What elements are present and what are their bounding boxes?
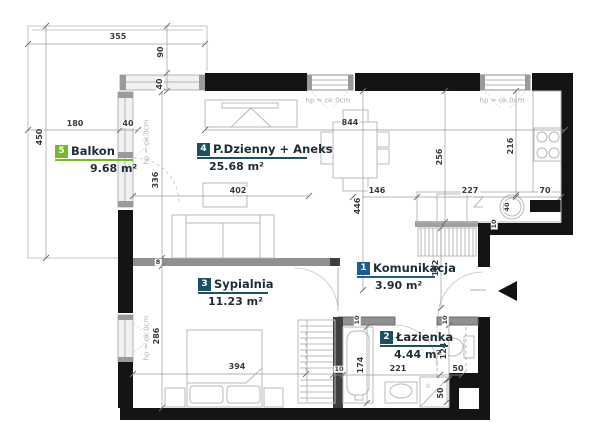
wardrobe: [298, 320, 335, 403]
dimension-label: 402: [229, 187, 248, 195]
dimension-label: 50: [451, 365, 464, 373]
sofa: [172, 215, 274, 258]
room-name: Łazienka: [396, 330, 453, 344]
room-number-badge: 3: [198, 278, 211, 291]
dimension-label: 355: [109, 33, 128, 41]
washbasin: [385, 382, 417, 403]
dimension-label: 10: [354, 314, 361, 325]
room-area: 11.23 m²: [208, 295, 268, 308]
dimension-label: 10: [333, 366, 344, 373]
dimension-label: 10: [491, 218, 498, 229]
floor-plan-drawing: d: [0, 0, 600, 447]
room-name: P.Dzienny + Aneks: [213, 142, 333, 156]
dimension-label: 227: [461, 187, 480, 195]
entrance-door-swing: [438, 272, 483, 317]
dimension-label: 174: [357, 356, 365, 375]
height-note-label: hp = ok.0cm: [305, 98, 352, 105]
height-note-label: hp = ok.0cm: [144, 315, 151, 362]
shaft-opening: [459, 388, 479, 409]
dimension-label: 90: [157, 45, 165, 58]
room-rule: [357, 276, 435, 278]
tv-cabinet: [205, 100, 297, 127]
height-note-label: hp = ok.0cm: [144, 119, 151, 166]
room-name: Balkon: [71, 144, 115, 158]
dimension-label: 336: [152, 171, 160, 190]
room-name: Komunikacja: [373, 261, 456, 275]
bedroom-window: [118, 315, 133, 362]
room-label-lazienka: 2 Łazienka 4.44 m²: [380, 330, 448, 361]
floor-plan: d: [0, 0, 600, 447]
room-area: 9.68 m²: [90, 162, 133, 175]
dimension-label: 221: [389, 365, 408, 373]
room-label-komunikacja: 1 Komunikacja 3.90 m²: [357, 261, 435, 292]
dimension-label: 50: [437, 386, 445, 399]
dimension-label: 450: [36, 128, 44, 147]
room-number-badge: 1: [357, 262, 370, 275]
room-name: Sypialnia: [214, 277, 274, 291]
dimension-label: 10: [442, 314, 449, 325]
dimension-label: 844: [341, 119, 360, 127]
room-number-badge: 4: [197, 143, 210, 156]
room-number-badge: 5: [55, 145, 68, 158]
room-area: 3.90 m²: [375, 279, 435, 292]
dimension-label: 8: [155, 259, 162, 266]
room-label-sypialnia: 3 Sypialnia 11.23 m²: [198, 277, 268, 308]
radiator: [418, 228, 476, 256]
room-label-balkon: 5 Balkon 9.68 m²: [55, 144, 133, 175]
cooktop: [534, 128, 561, 161]
window-top-2: [480, 75, 530, 90]
dimension-label: 256: [436, 148, 444, 167]
dimension-label: 40: [504, 201, 511, 212]
room-label-pokoj-dzienny: 4 P.Dzienny + Aneks 25.68 m²: [197, 142, 307, 173]
bedroom-door: [295, 268, 338, 311]
height-note-label: hp = ok.0cm: [479, 98, 526, 105]
room-rule: [198, 292, 268, 294]
dimension-label: 286: [153, 327, 161, 346]
dimension-label: 394: [228, 363, 247, 371]
dimension-label: 216: [507, 137, 515, 156]
room-rule: [380, 345, 448, 347]
room-area: 4.44 m²: [394, 348, 448, 361]
window-top-1: [307, 75, 353, 90]
room-number-badge: 2: [380, 331, 393, 344]
room-rule: [197, 157, 307, 159]
dimension-label: 40: [121, 120, 134, 128]
washer-mark: d: [426, 383, 430, 390]
bed: [165, 330, 283, 407]
dimension-label: 40: [156, 77, 164, 90]
room-rule: [55, 159, 133, 161]
dimension-label: 446: [354, 197, 362, 216]
dimension-label: 70: [538, 187, 551, 195]
room-area: 25.68 m²: [209, 160, 307, 173]
dimension-label: 180: [66, 120, 85, 128]
dimension-label: 146: [368, 187, 387, 195]
entrance-arrow: [498, 281, 517, 301]
